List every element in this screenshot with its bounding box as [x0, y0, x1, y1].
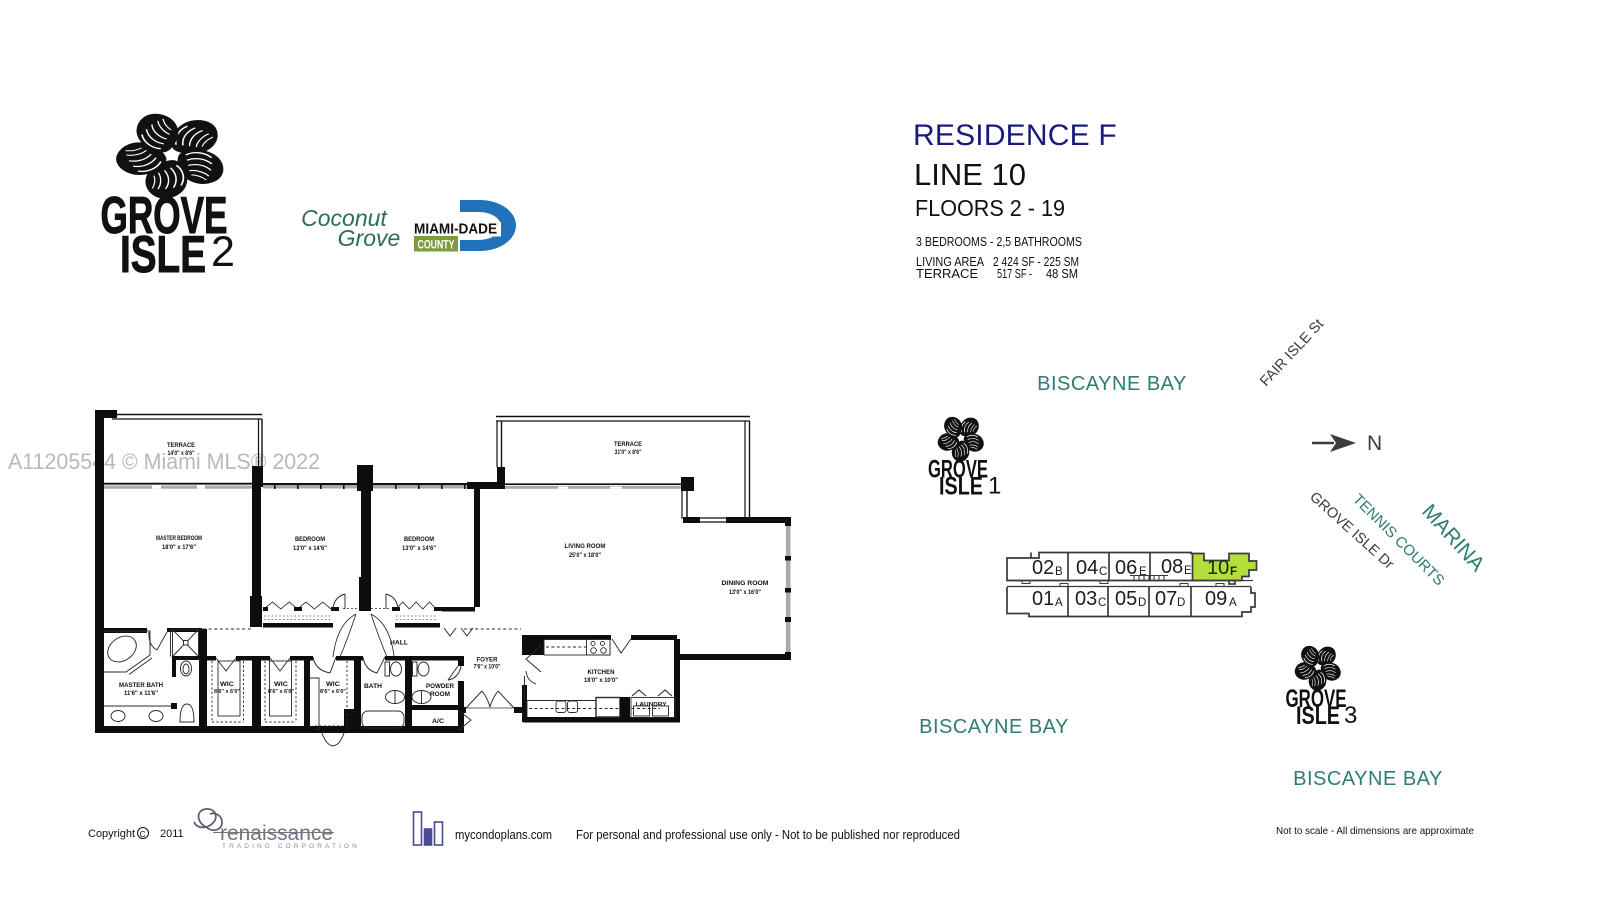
svg-text:ISLE: ISLE: [939, 473, 983, 501]
svg-text:TERRACE: TERRACE: [167, 442, 196, 449]
svg-text:Not to scale - All dimensions: Not to scale - All dimensions are approx…: [1276, 825, 1474, 837]
svg-text:BISCAYNE BAY: BISCAYNE BAY: [1293, 768, 1443, 790]
svg-text:2011: 2011: [160, 828, 184, 840]
svg-text:D: D: [1177, 597, 1185, 609]
svg-text:TERRACE: TERRACE: [614, 441, 643, 448]
svg-text:COUNTY: COUNTY: [418, 238, 455, 252]
svg-text:E: E: [1139, 566, 1147, 578]
svg-text:C: C: [1099, 566, 1107, 578]
svg-text:2: 2: [211, 228, 235, 276]
svg-text:BATH: BATH: [364, 683, 382, 690]
svg-text:N: N: [1367, 432, 1382, 455]
svg-text:C: C: [1098, 597, 1106, 609]
svg-text:LIVING ROOM: LIVING ROOM: [565, 543, 606, 550]
svg-text:8'6" x 6'0": 8'6" x 6'0": [320, 689, 346, 695]
svg-text:DINING ROOM: DINING ROOM: [722, 580, 770, 587]
svg-text:08: 08: [1161, 556, 1183, 578]
svg-text:3 BEDROOMS - 2,5 BATHROOMS: 3 BEDROOMS - 2,5 BATHROOMS: [916, 234, 1082, 249]
svg-text:HALL: HALL: [390, 640, 408, 647]
svg-text:04: 04: [1076, 557, 1098, 579]
svg-text:517 SF -: 517 SF -: [997, 266, 1032, 281]
svg-text:A: A: [1229, 597, 1237, 609]
svg-text:Grove: Grove: [338, 225, 401, 251]
svg-text:ISLE: ISLE: [120, 226, 206, 284]
svg-text:09: 09: [1205, 588, 1227, 610]
svg-text:WIC: WIC: [326, 681, 341, 688]
svg-text:WIC: WIC: [220, 681, 235, 688]
svg-text:A: A: [1055, 597, 1063, 609]
svg-text:03: 03: [1075, 588, 1097, 610]
svg-text:F: F: [1230, 566, 1237, 578]
svg-text:KITCHEN: KITCHEN: [588, 669, 615, 676]
svg-text:FLOORS 2 - 19: FLOORS 2 - 19: [915, 195, 1065, 221]
svg-text:02: 02: [1032, 557, 1054, 579]
svg-text:A/C: A/C: [432, 718, 445, 725]
svg-text:18'0" x 17'6": 18'0" x 17'6": [162, 544, 196, 551]
svg-text:48 SM: 48 SM: [1046, 266, 1078, 281]
svg-text:MASTER BATH: MASTER BATH: [119, 682, 163, 689]
svg-text:C: C: [140, 829, 146, 839]
svg-text:13'0" x 14'6": 13'0" x 14'6": [402, 545, 436, 552]
svg-text:WIC: WIC: [274, 681, 289, 688]
svg-text:05: 05: [1115, 588, 1137, 610]
svg-text:3: 3: [1344, 702, 1357, 729]
svg-text:13'0" x 14'6": 13'0" x 14'6": [293, 545, 327, 552]
svg-text:13'0" x 16'0": 13'0" x 16'0": [729, 589, 761, 596]
svg-text:1: 1: [988, 473, 1001, 500]
svg-text:07: 07: [1155, 588, 1177, 610]
svg-text:BEDROOM: BEDROOM: [295, 536, 325, 543]
svg-text:18'0" x 10'0": 18'0" x 10'0": [584, 677, 618, 684]
svg-text:E: E: [1184, 565, 1192, 577]
svg-text:14'0" x 8'6": 14'0" x 8'6": [168, 451, 195, 457]
svg-text:BEDROOM: BEDROOM: [404, 536, 434, 543]
svg-text:11'6" x 11'6": 11'6" x 11'6": [124, 690, 158, 697]
svg-text:TERRACE: TERRACE: [916, 266, 978, 281]
svg-text:01: 01: [1032, 588, 1054, 610]
svg-text:TRADING CORPORATION: TRADING CORPORATION: [222, 843, 360, 850]
svg-text:FOYER: FOYER: [477, 657, 498, 664]
svg-text:BISCAYNE BAY: BISCAYNE BAY: [1037, 373, 1187, 395]
svg-text:06: 06: [1115, 557, 1137, 579]
svg-text:MASTER BEDROOM: MASTER BEDROOM: [156, 535, 202, 542]
svg-text:BISCAYNE BAY: BISCAYNE BAY: [919, 716, 1069, 738]
svg-text:renaissance: renaissance: [220, 822, 333, 845]
svg-text:25'0" x 18'0": 25'0" x 18'0": [569, 552, 601, 559]
svg-text:A11205544 © Miami MLS® 2022: A11205544 © Miami MLS® 2022: [8, 449, 320, 474]
svg-text:B: B: [1055, 566, 1063, 578]
svg-text:D: D: [1138, 597, 1146, 609]
svg-text:ISLE: ISLE: [1296, 702, 1340, 730]
svg-text:31'0" x 8'6": 31'0" x 8'6": [615, 450, 642, 456]
svg-text:7'6" x 10'0": 7'6" x 10'0": [474, 665, 501, 671]
svg-text:mycondoplans.com: mycondoplans.com: [455, 827, 552, 842]
svg-text:For personal and professional: For personal and professional use only -…: [576, 827, 960, 842]
svg-text:ROOM: ROOM: [430, 691, 450, 698]
svg-text:10: 10: [1207, 557, 1229, 579]
svg-text:8'6" x 6'0": 8'6" x 6'0": [268, 689, 294, 695]
svg-text:8'6" x 6'0": 8'6" x 6'0": [214, 689, 240, 695]
svg-text:LINE 10: LINE 10: [914, 157, 1026, 192]
svg-text:Copyright: Copyright: [88, 828, 135, 840]
svg-text:POWDER: POWDER: [426, 683, 454, 690]
svg-text:LAUNDRY: LAUNDRY: [636, 702, 667, 708]
svg-text:RESIDENCE F: RESIDENCE F: [913, 119, 1117, 152]
svg-text:MIAMI-DADE: MIAMI-DADE: [414, 221, 497, 238]
